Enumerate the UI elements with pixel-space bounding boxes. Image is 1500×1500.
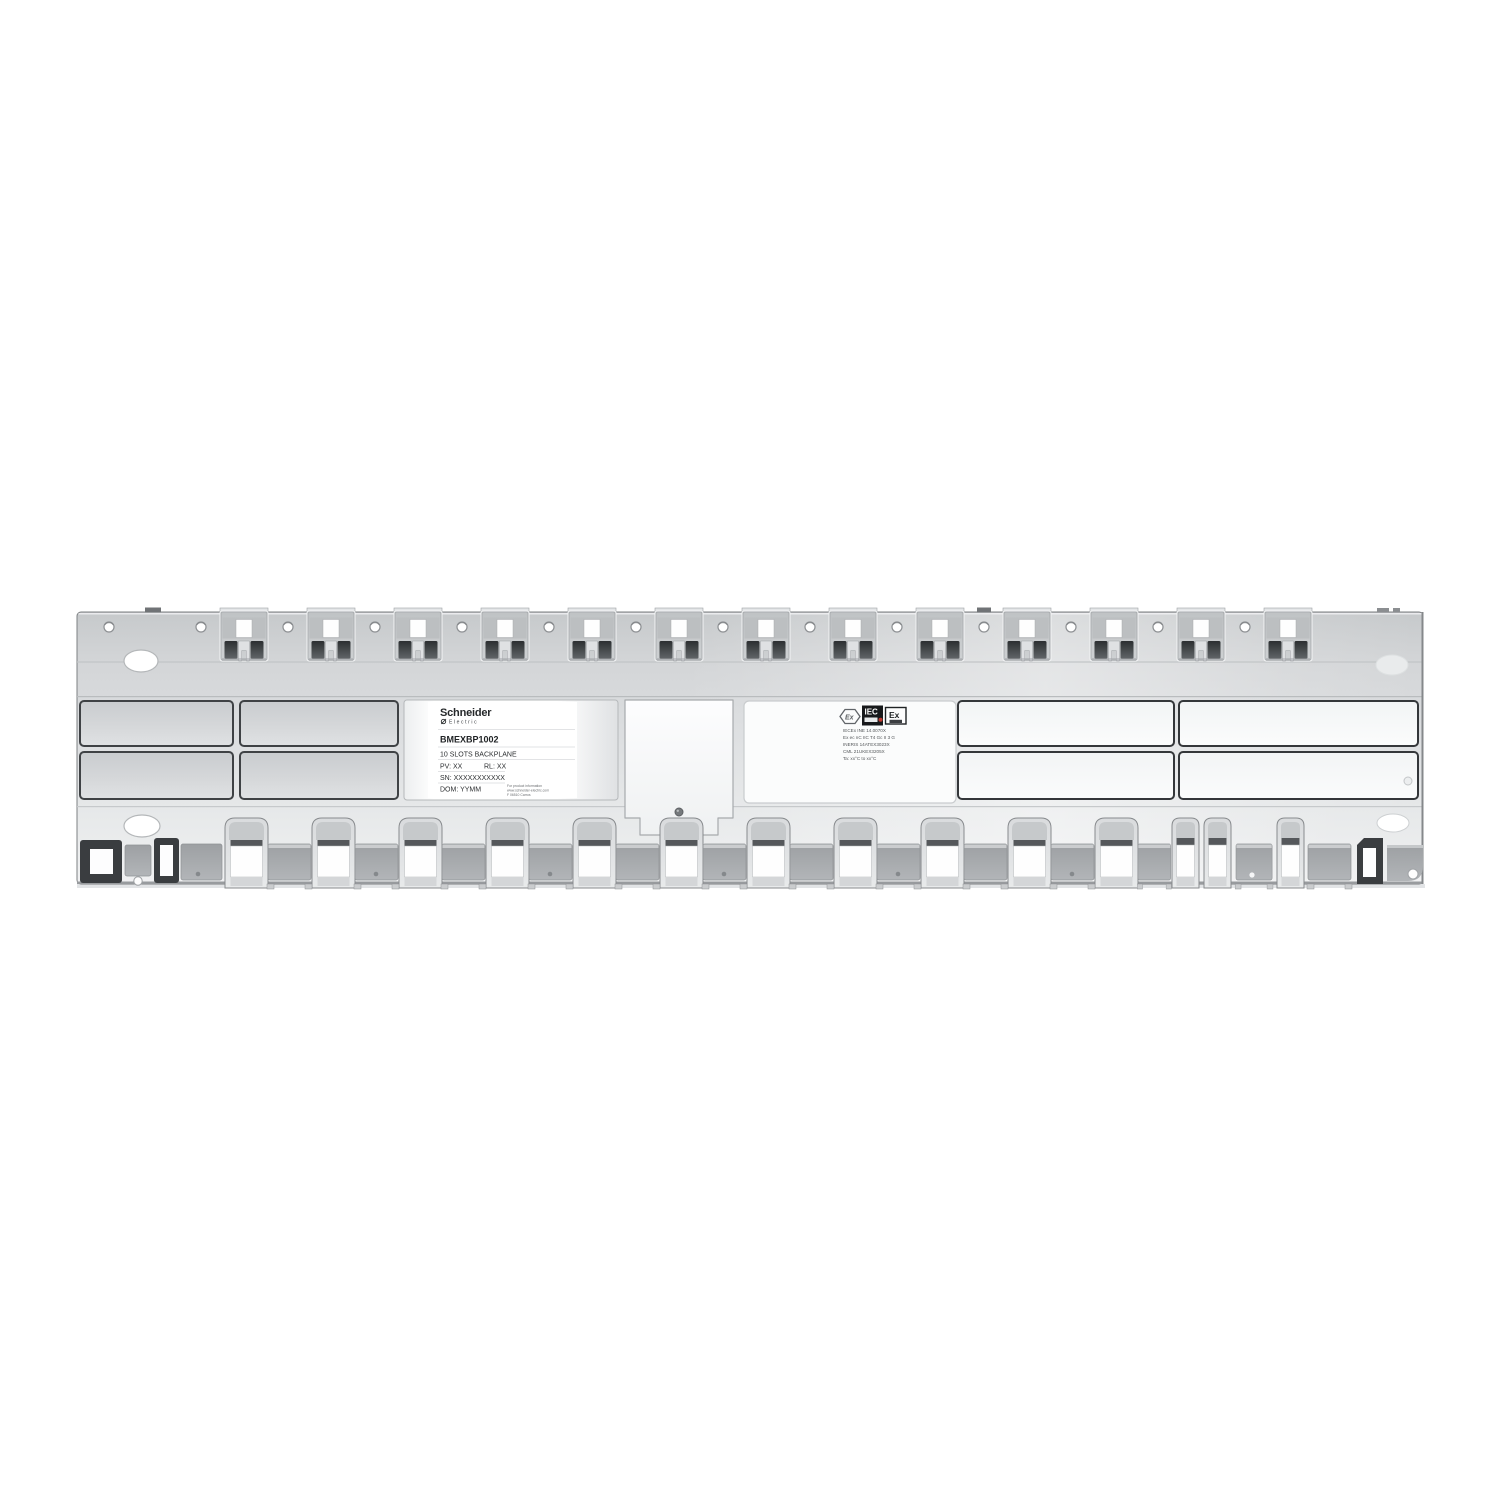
- screw-hole: [196, 622, 206, 632]
- hook-channel: [225, 818, 268, 888]
- screw-hole: [805, 622, 815, 632]
- slot-clip-cutout: [481, 608, 529, 661]
- top-tab: [145, 608, 161, 613]
- panel-screw-highlight: [677, 810, 679, 812]
- screw-hole: [457, 622, 467, 632]
- pocket-dimple: [548, 872, 553, 877]
- screw-hole: [544, 622, 554, 632]
- recessed-window: [80, 752, 233, 799]
- screw-hole: [104, 622, 114, 632]
- top-tab: [1377, 608, 1389, 612]
- iecex-red-dot: [879, 718, 883, 722]
- mounting-slot-oval: [124, 650, 158, 672]
- cert-line-3: INERIS 14ATEX3023X: [843, 742, 890, 747]
- screw-hole: [283, 622, 293, 632]
- hook-channel: [834, 818, 877, 888]
- slot-clip-cutout: [220, 608, 268, 661]
- vent-pocket: [181, 844, 222, 880]
- pocket-dimple: [896, 872, 901, 877]
- brand-subname: Electric: [449, 720, 478, 726]
- hook-channel-narrow: [1172, 818, 1199, 888]
- iecex-logo-icon: IEC: [862, 706, 883, 726]
- pocket-dimple: [722, 872, 727, 877]
- pocket-dimple: [374, 872, 379, 877]
- hook-channel: [399, 818, 442, 888]
- recessed-window: [240, 701, 398, 746]
- recessed-window: [1179, 752, 1418, 799]
- mounting-slot-oval: [1377, 814, 1409, 832]
- mounting-slot-oval: [124, 815, 160, 837]
- square-through-hole: [90, 849, 113, 874]
- product-photo-canvas: Schneider Electric BMEXBP1002 10 SLOTS B…: [0, 0, 1500, 1500]
- screw-hole: [1153, 622, 1163, 632]
- corner-hole: [1408, 869, 1418, 879]
- top-tab: [977, 608, 991, 613]
- hook-channel: [573, 818, 616, 888]
- screw-hole: [979, 622, 989, 632]
- screw-hole: [718, 622, 728, 632]
- product-description: 10 SLOTS BACKPLANE: [440, 752, 517, 759]
- pv-value: PV: XX: [440, 764, 463, 771]
- hook-channel: [921, 818, 964, 888]
- screw-hole: [370, 622, 380, 632]
- pocket-dimple: [196, 872, 201, 877]
- model-number: BMEXBP1002: [440, 735, 499, 745]
- hook-channel-narrow: [1277, 818, 1304, 888]
- window-dimple: [1404, 777, 1412, 785]
- backplane-product-image: Schneider Electric BMEXBP1002 10 SLOTS B…: [0, 0, 1500, 1500]
- edge-hole: [1249, 872, 1255, 878]
- hook-channel: [312, 818, 355, 888]
- rl-value: RL: XX: [484, 764, 507, 771]
- screw-hole: [1066, 622, 1076, 632]
- hex-ex-label: Ex: [845, 714, 855, 721]
- hook-channel: [1008, 818, 1051, 888]
- panel-screw-hole: [675, 808, 683, 816]
- info-line-2: www.schneider-electric.com: [507, 789, 549, 793]
- hook-channel: [486, 818, 529, 888]
- recessed-window: [240, 752, 398, 799]
- brand-name: Schneider: [440, 707, 492, 719]
- slot-clip-cutout: [1177, 608, 1225, 661]
- slot-clip-cutout: [1264, 608, 1312, 661]
- info-line-3: F 06510 Carros: [507, 793, 531, 797]
- tall-through-hole: [1363, 848, 1376, 877]
- corner-pocket-bevel: [1387, 845, 1423, 848]
- slot-clip-cutout: [1003, 608, 1051, 661]
- product-label-panel: Schneider Electric BMEXBP1002 10 SLOTS B…: [404, 700, 618, 800]
- slot-clip-cutout: [916, 608, 964, 661]
- plate-right-edge: [1422, 612, 1424, 884]
- recessed-window: [1179, 701, 1418, 746]
- screw-hole: [892, 622, 902, 632]
- slot-clip-cutout: [655, 608, 703, 661]
- cert-line-1: IECEx INE 14.0070X: [843, 728, 886, 733]
- ex-box-icon: Ex: [886, 708, 907, 725]
- plate-mid-groove-bottom: [77, 806, 1423, 807]
- certification-panel: Ex IEC Ex IECEx INE 14.0070X Ex ec nC II…: [744, 701, 956, 803]
- hook-channel: [747, 818, 790, 888]
- ex-box-label: Ex: [889, 710, 900, 720]
- slot-clip-cutout: [742, 608, 790, 661]
- pocket-dimple: [1070, 872, 1075, 877]
- vent-pocket: [125, 845, 151, 876]
- cert-line-2: Ex ec nC IIC T4 Gc II 3 G: [843, 735, 895, 740]
- serial-number: SN: XXXXXXXXXXX: [440, 775, 505, 782]
- slot-clip-cutout: [394, 608, 442, 661]
- recessed-window: [80, 701, 233, 746]
- slot-clip-cutout: [307, 608, 355, 661]
- hook-channel: [1095, 818, 1138, 888]
- hook-channel-narrow: [1204, 818, 1231, 888]
- slot-clip-cutout: [568, 608, 616, 661]
- embossed-oval: [1376, 655, 1408, 675]
- recessed-window: [958, 752, 1174, 799]
- screw-hole: [631, 622, 641, 632]
- info-line-1: For product information: [507, 784, 542, 788]
- date-of-manufacture: DOM: YYMM: [440, 787, 481, 794]
- iec-label: IEC: [865, 708, 879, 717]
- center-notched-panel: [625, 700, 733, 835]
- recessed-window: [958, 701, 1174, 746]
- screw-hole: [1240, 622, 1250, 632]
- plate-mid-groove-top: [77, 696, 1423, 697]
- cert-line-4: CML 21UKEX3205X: [843, 749, 885, 754]
- tall-through-hole: [160, 845, 173, 876]
- edge-hole: [134, 877, 142, 885]
- cert-line-5: Ta: xx°C to xx°C: [843, 756, 877, 761]
- slot-clip-cutout: [1090, 608, 1138, 661]
- slot-clip-cutout: [829, 608, 877, 661]
- hook-channel: [660, 818, 703, 888]
- top-tab: [1393, 608, 1400, 612]
